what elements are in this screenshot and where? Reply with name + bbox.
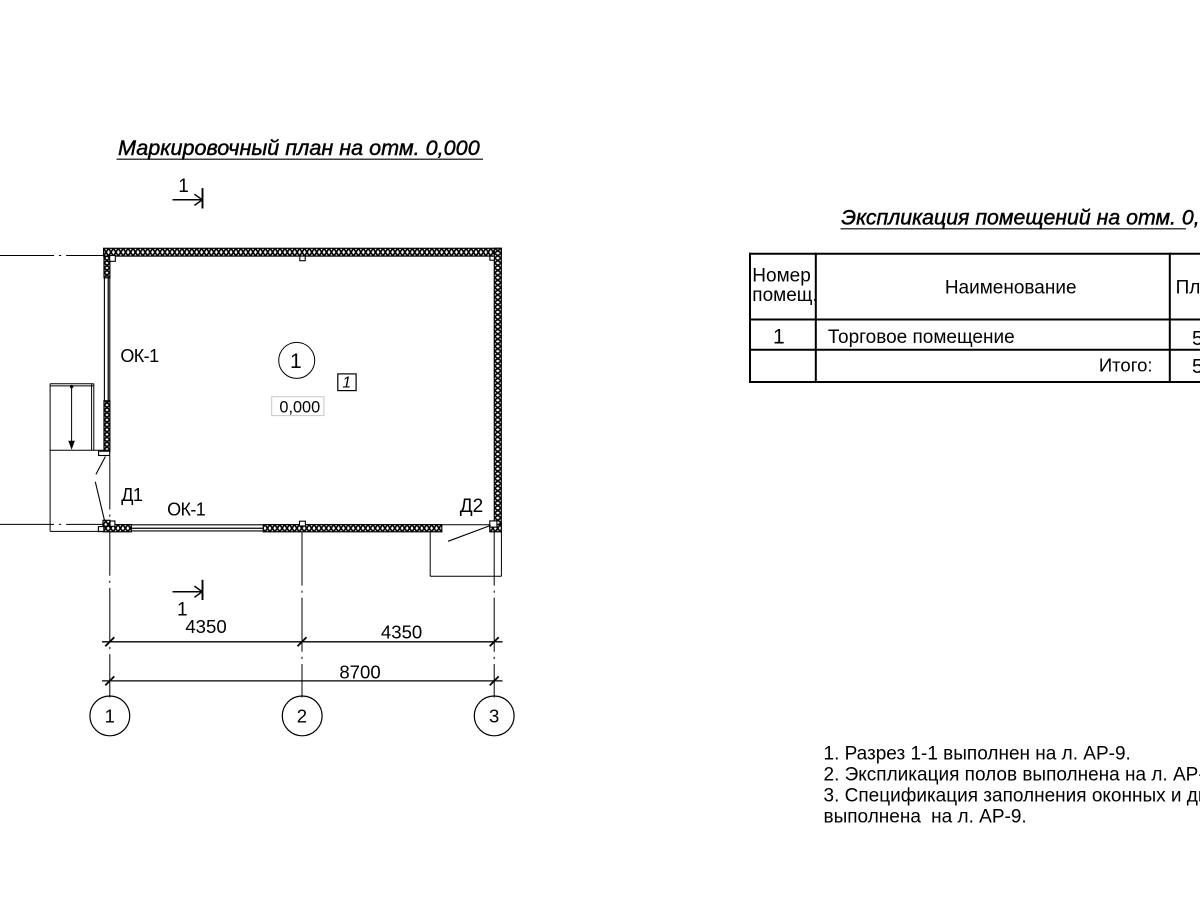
svg-text:4350: 4350 bbox=[381, 622, 422, 643]
svg-text:1: 1 bbox=[105, 706, 115, 727]
svg-text:Итого:: Итого: bbox=[1099, 355, 1153, 376]
svg-text:выполнена на л. АР-9.: выполнена на л. АР-9. bbox=[824, 807, 1027, 828]
svg-text:Д2: Д2 bbox=[460, 496, 483, 517]
svg-text:1: 1 bbox=[290, 350, 302, 373]
svg-text:помещ.: помещ. bbox=[752, 285, 817, 306]
svg-text:1: 1 bbox=[178, 176, 189, 197]
svg-text:4350: 4350 bbox=[185, 616, 226, 637]
svg-text:8700: 8700 bbox=[339, 661, 380, 682]
svg-text:Номер: Номер bbox=[752, 266, 810, 287]
svg-text:Д1: Д1 bbox=[121, 485, 143, 505]
svg-text:1. Разрез 1-1 выполнен на л. А: 1. Разрез 1-1 выполнен на л. АР-9. bbox=[824, 744, 1131, 765]
svg-text:Наименование: Наименование bbox=[945, 278, 1077, 299]
svg-text:ОК-1: ОК-1 bbox=[120, 346, 159, 366]
svg-text:Площадь: Площадь bbox=[1176, 278, 1200, 299]
svg-text:2: 2 bbox=[297, 706, 307, 727]
svg-text:2. Экспликация полов выполнена: 2. Экспликация полов выполнена на л. АР-… bbox=[824, 765, 1200, 786]
svg-text:0,000: 0,000 bbox=[279, 399, 320, 417]
svg-text:1: 1 bbox=[773, 325, 785, 348]
svg-text:Маркировочный план на отм. 0,0: Маркировочный план на отм. 0,000 bbox=[118, 135, 480, 160]
svg-text:5: 5 bbox=[1192, 328, 1200, 350]
svg-text:3: 3 bbox=[489, 706, 499, 727]
svg-text:1: 1 bbox=[342, 375, 351, 392]
svg-text:ОК-1: ОК-1 bbox=[167, 499, 206, 519]
svg-text:Экспликация помещений на отм.: Экспликация помещений на отм. 0,000 bbox=[841, 205, 1200, 229]
svg-text:3. Спецификация заполнения око: 3. Спецификация заполнения оконных и две… bbox=[824, 786, 1200, 807]
svg-text:5: 5 bbox=[1192, 356, 1200, 378]
svg-text:Торговое помещение: Торговое помещение bbox=[828, 327, 1015, 348]
